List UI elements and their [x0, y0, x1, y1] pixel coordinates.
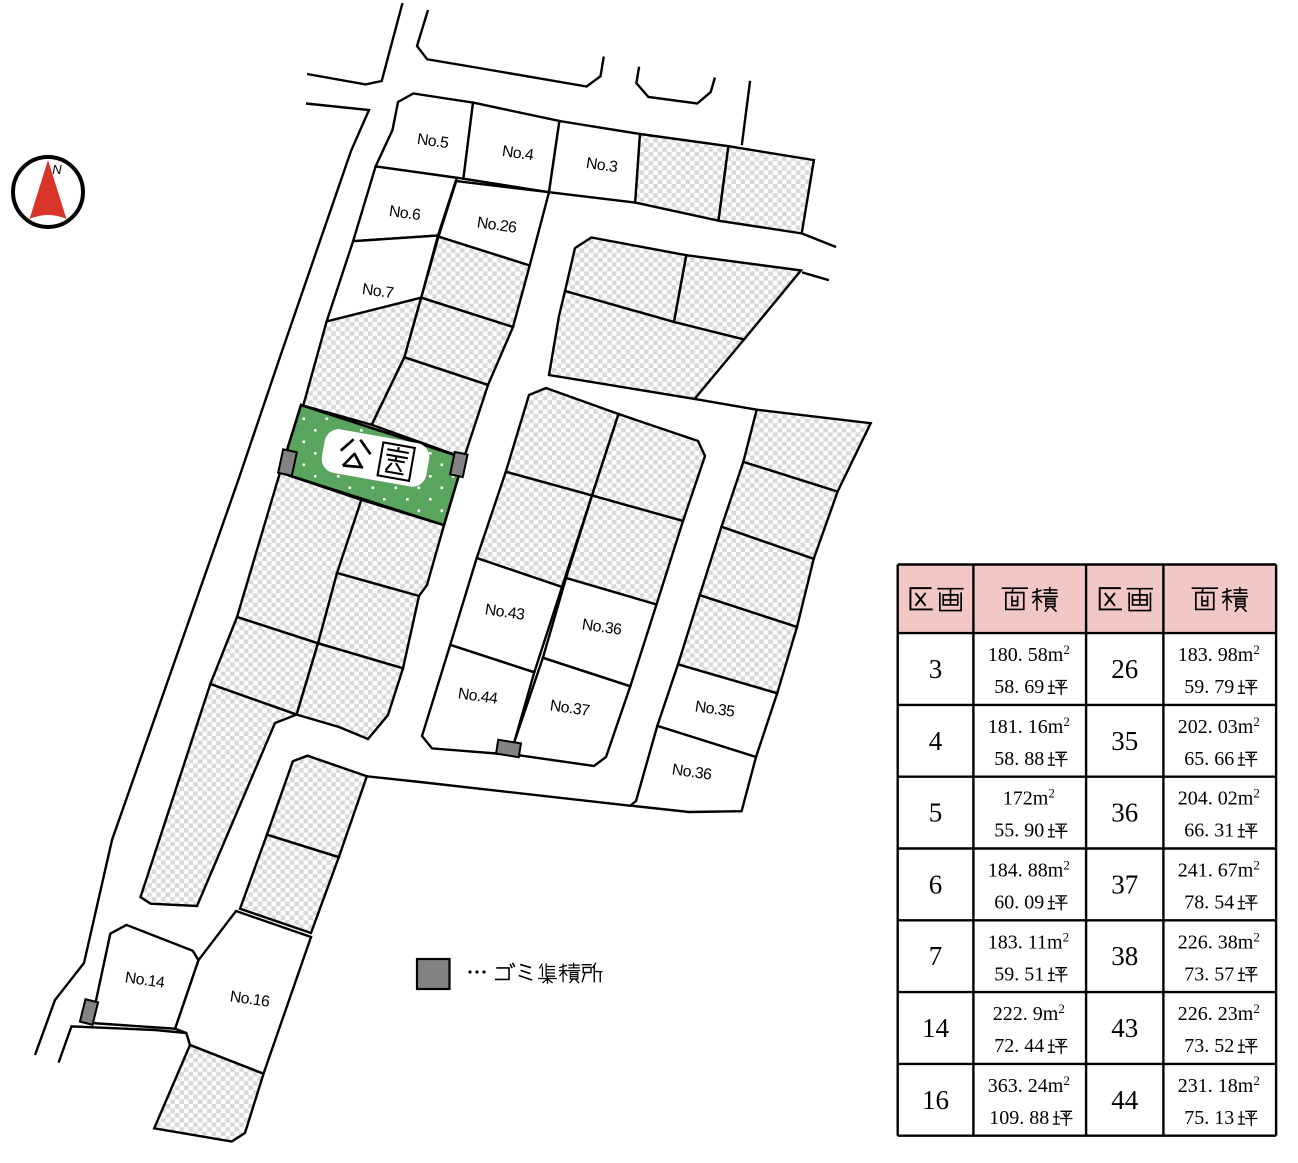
svg-text:60. 09: 60. 09 — [994, 892, 1044, 914]
svg-text:183. 98m2: 183. 98m2 — [1178, 642, 1260, 666]
svg-text:226. 23m2: 226. 23m2 — [1178, 1001, 1260, 1025]
svg-text:14: 14 — [922, 1013, 950, 1043]
svg-text:6: 6 — [929, 869, 943, 899]
svg-text:37: 37 — [1111, 869, 1138, 899]
svg-text:184. 88m2: 184. 88m2 — [988, 858, 1070, 882]
svg-text:55. 90: 55. 90 — [994, 820, 1044, 842]
svg-text:363. 24m2: 363. 24m2 — [988, 1073, 1070, 1097]
svg-text:172m2: 172m2 — [1003, 786, 1055, 810]
svg-text:73. 52: 73. 52 — [1184, 1035, 1234, 1057]
svg-text:65. 66: 65. 66 — [1184, 748, 1234, 770]
svg-text:35: 35 — [1111, 726, 1138, 756]
svg-text:58. 88: 58. 88 — [994, 748, 1044, 770]
svg-text:44: 44 — [1111, 1085, 1139, 1115]
svg-text:5: 5 — [929, 798, 943, 828]
svg-text:109. 88: 109. 88 — [989, 1107, 1049, 1129]
svg-text:181. 16m2: 181. 16m2 — [988, 714, 1070, 738]
svg-text:72. 44: 72. 44 — [994, 1035, 1044, 1057]
svg-text:16: 16 — [922, 1085, 949, 1115]
svg-text:58. 69: 58. 69 — [994, 676, 1044, 698]
svg-text:204. 02m2: 204. 02m2 — [1178, 786, 1260, 810]
svg-text:66. 31: 66. 31 — [1184, 820, 1234, 842]
svg-text:231. 18m2: 231. 18m2 — [1178, 1073, 1260, 1097]
svg-text:36: 36 — [1111, 798, 1138, 828]
svg-text:75. 13: 75. 13 — [1184, 1107, 1234, 1129]
svg-text:73. 57: 73. 57 — [1184, 963, 1234, 985]
svg-text:202. 03m2: 202. 03m2 — [1178, 714, 1260, 738]
svg-text:183. 11m2: 183. 11m2 — [988, 929, 1069, 953]
svg-text:59. 79: 59. 79 — [1184, 676, 1234, 698]
svg-text:226. 38m2: 226. 38m2 — [1178, 929, 1260, 953]
svg-text:3: 3 — [929, 654, 943, 684]
svg-text:180. 58m2: 180. 58m2 — [988, 642, 1070, 666]
svg-text:59. 51: 59. 51 — [994, 963, 1044, 985]
svg-text:241. 67m2: 241. 67m2 — [1178, 858, 1260, 882]
svg-text:4: 4 — [929, 726, 943, 756]
svg-text:7: 7 — [929, 941, 943, 971]
svg-text:N: N — [52, 162, 62, 177]
svg-text:38: 38 — [1111, 941, 1138, 971]
svg-text:43: 43 — [1111, 1013, 1138, 1043]
svg-text:78. 54: 78. 54 — [1184, 892, 1234, 914]
svg-text:222. 9m2: 222. 9m2 — [993, 1001, 1065, 1025]
svg-text:26: 26 — [1111, 654, 1138, 684]
